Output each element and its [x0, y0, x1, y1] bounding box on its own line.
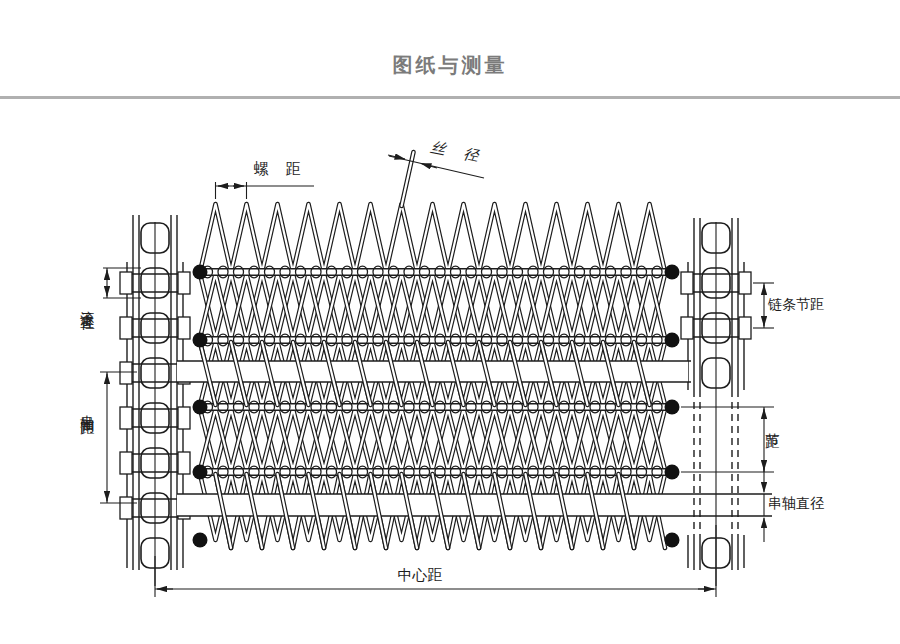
label-screw-pitch: 螺 距	[254, 162, 307, 178]
mesh-rows	[200, 152, 665, 548]
mesh-belt-diagram	[0, 0, 900, 644]
dim-screw-pitch	[216, 182, 315, 199]
belt-assembly	[120, 152, 772, 586]
label-shaft-diameter: 串轴直径	[768, 496, 824, 511]
label-chain-pitch: 链条节距	[768, 297, 824, 312]
label-center-distance: 中心距	[398, 568, 443, 584]
label-shaft-spacing: 串轴间距	[80, 404, 95, 412]
dim-mesh-pitch	[681, 407, 774, 472]
dim-shaft-spacing	[100, 372, 137, 503]
label-roller-diameter: 滚子直径	[80, 299, 95, 307]
label-mesh-pitch: 节距	[765, 422, 780, 426]
left-chain	[120, 215, 190, 586]
mesh-belt-drawing-page: 图纸与测量	[0, 0, 900, 644]
